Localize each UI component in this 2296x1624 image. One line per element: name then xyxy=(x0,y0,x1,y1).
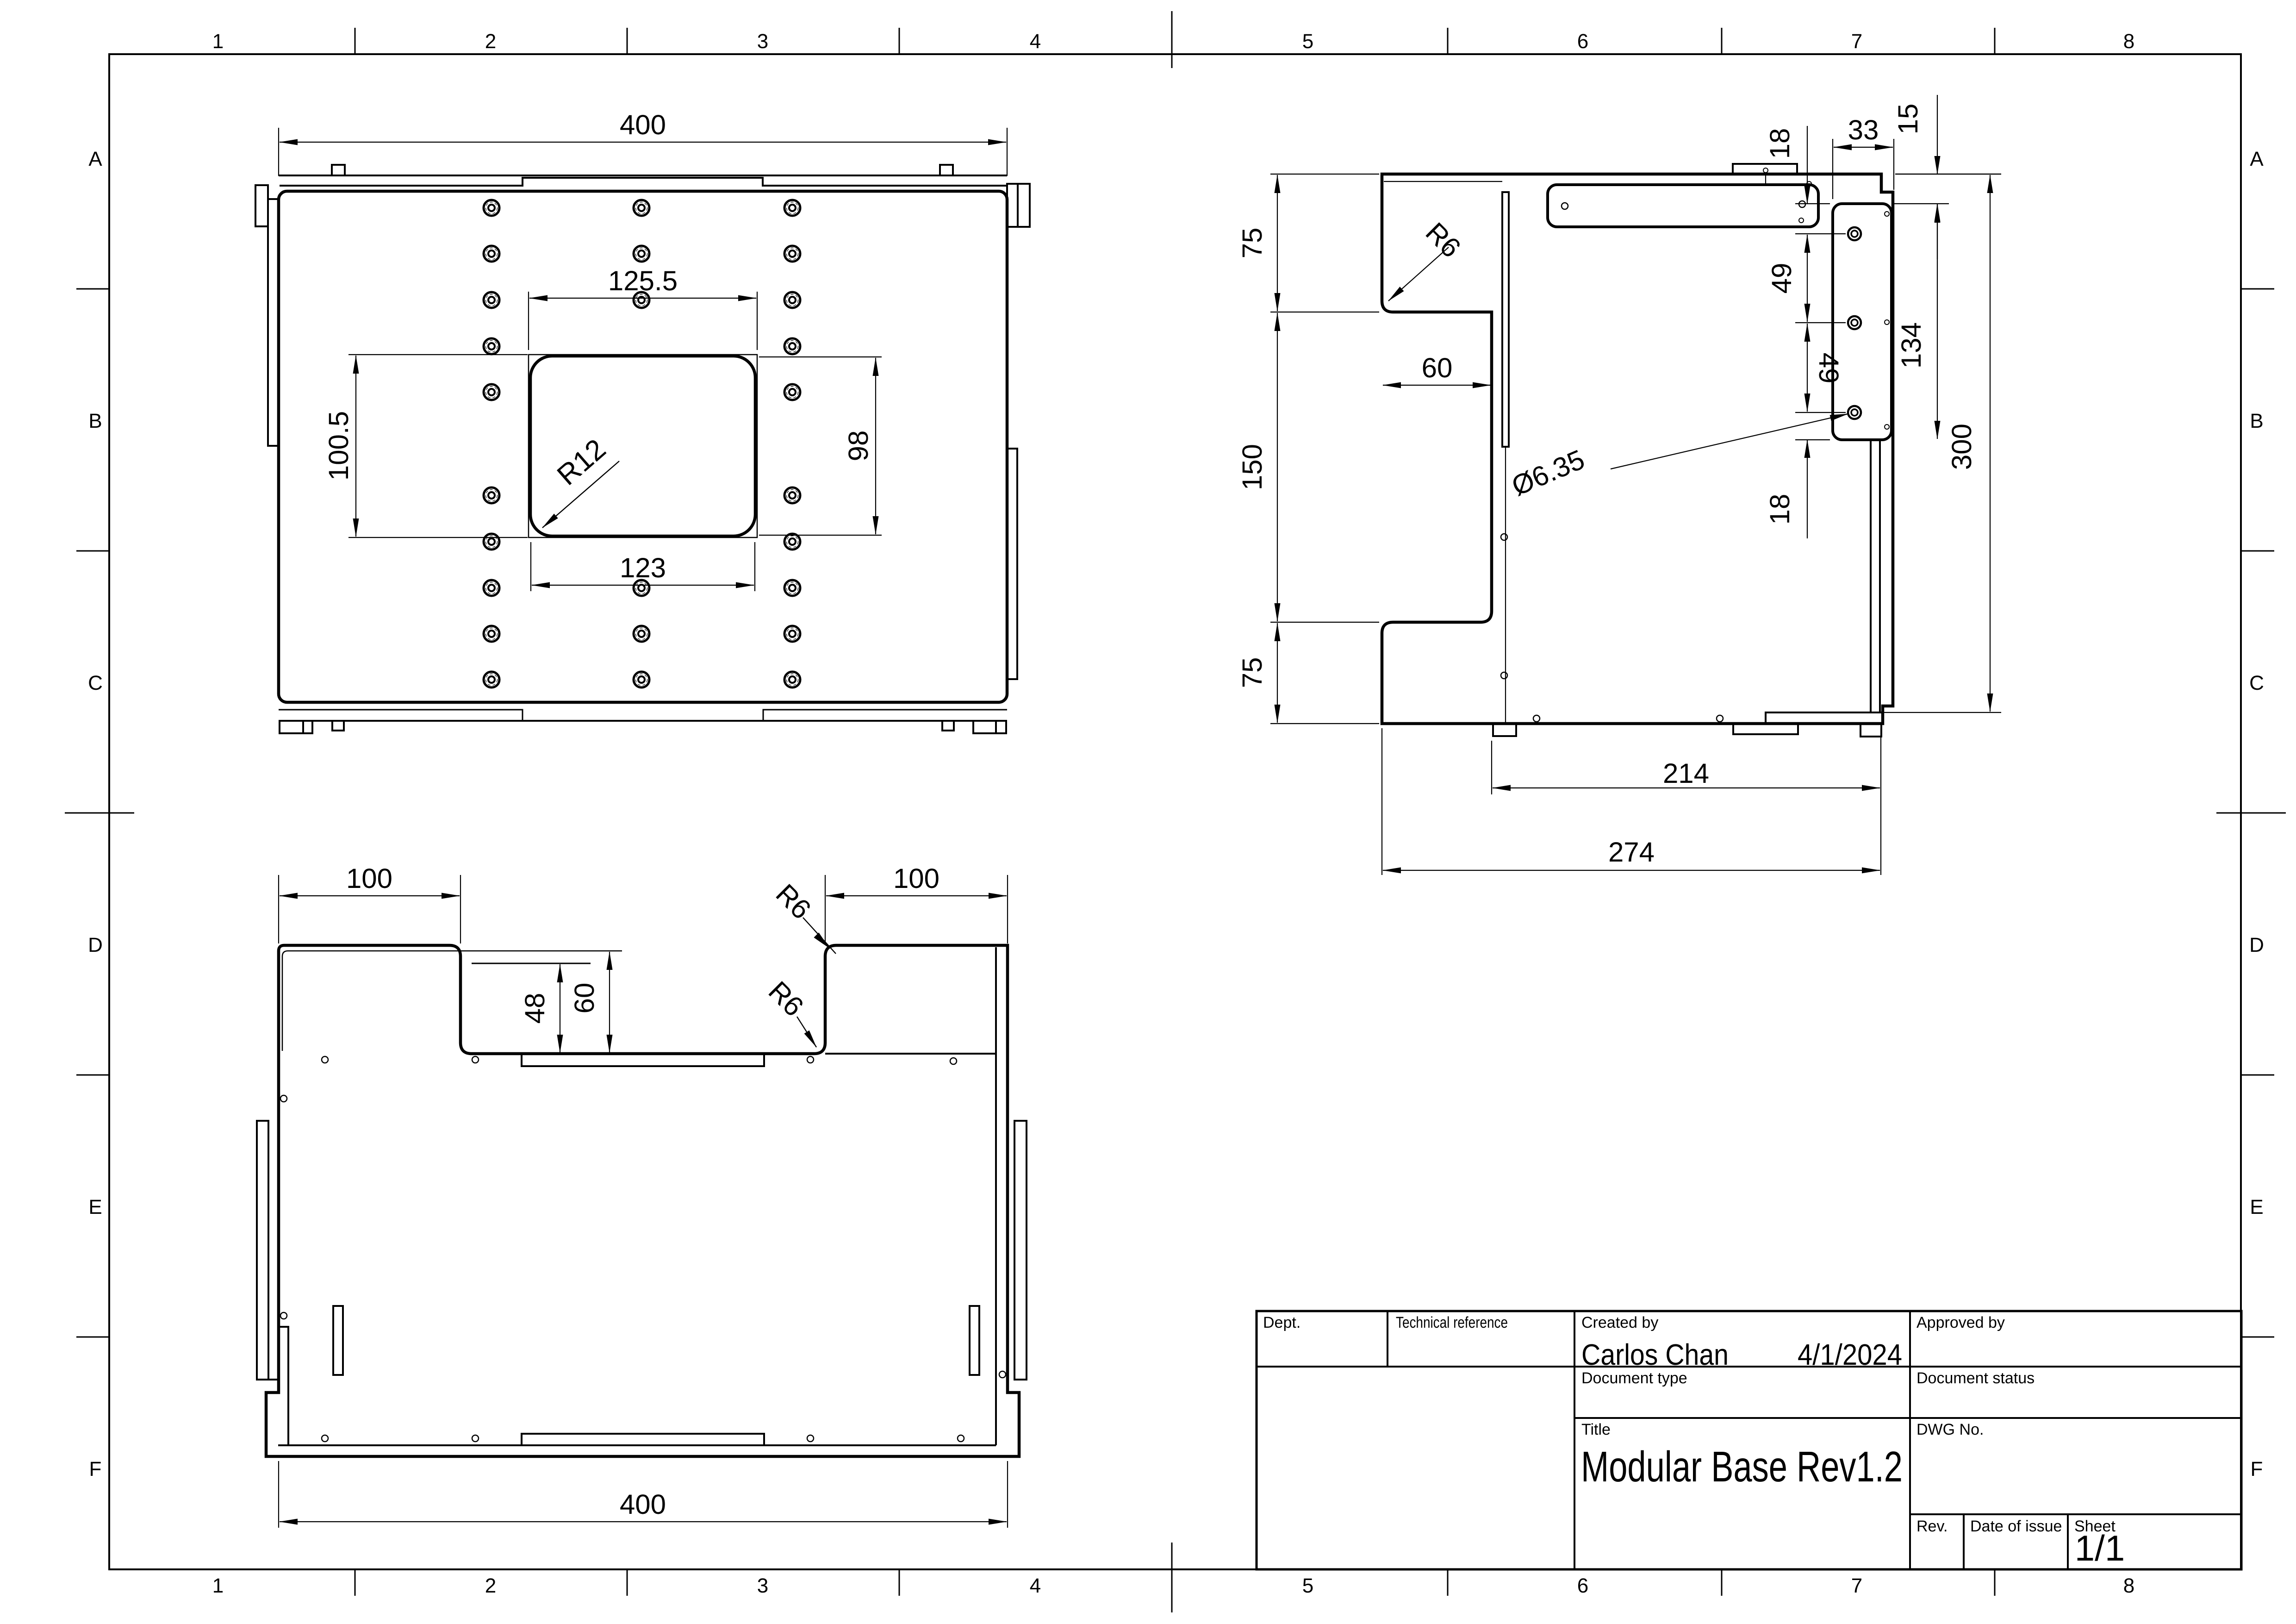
svg-text:49: 49 xyxy=(1813,353,1844,384)
svg-text:100: 100 xyxy=(893,863,940,894)
svg-text:Document status: Document status xyxy=(1916,1369,2035,1387)
svg-text:4/1/2024: 4/1/2024 xyxy=(1798,1338,1902,1371)
svg-text:49: 49 xyxy=(1766,263,1797,294)
svg-text:100.5: 100.5 xyxy=(323,411,354,481)
svg-text:75: 75 xyxy=(1237,657,1268,688)
svg-text:1: 1 xyxy=(212,30,224,53)
svg-text:15: 15 xyxy=(1892,104,1923,135)
svg-text:98: 98 xyxy=(843,431,874,462)
svg-text:Date of issue: Date of issue xyxy=(1970,1518,2062,1535)
svg-text:18: 18 xyxy=(1764,128,1795,159)
svg-text:F: F xyxy=(89,1458,102,1480)
svg-text:60: 60 xyxy=(1422,352,1453,383)
svg-text:Title: Title xyxy=(1581,1421,1611,1438)
svg-text:134: 134 xyxy=(1896,322,1927,369)
svg-text:6: 6 xyxy=(1577,30,1588,53)
svg-text:33: 33 xyxy=(1848,114,1879,145)
svg-text:4: 4 xyxy=(1030,30,1041,53)
svg-text:48: 48 xyxy=(519,993,550,1024)
svg-text:100: 100 xyxy=(346,863,392,894)
svg-text:D: D xyxy=(2249,934,2264,956)
svg-text:Technical reference: Technical reference xyxy=(1396,1314,1508,1331)
svg-text:2: 2 xyxy=(485,30,496,53)
svg-text:300: 300 xyxy=(1946,424,1977,470)
svg-text:C: C xyxy=(2249,672,2264,694)
svg-text:DWG No.: DWG No. xyxy=(1916,1421,1984,1438)
svg-text:A: A xyxy=(88,148,102,170)
svg-text:2: 2 xyxy=(485,1574,496,1597)
svg-text:5: 5 xyxy=(1302,30,1313,53)
svg-text:Document type: Document type xyxy=(1581,1369,1687,1387)
svg-text:D: D xyxy=(88,934,103,956)
svg-text:F: F xyxy=(2251,1458,2263,1480)
svg-text:1/1: 1/1 xyxy=(2075,1528,2125,1568)
svg-text:Modular Base Rev1.2: Modular Base Rev1.2 xyxy=(1581,1443,1903,1491)
svg-text:4: 4 xyxy=(1030,1574,1041,1597)
svg-text:3: 3 xyxy=(757,30,768,53)
svg-text:8: 8 xyxy=(2123,30,2134,53)
svg-text:Created by: Created by xyxy=(1581,1314,1658,1331)
svg-text:1: 1 xyxy=(212,1574,224,1597)
svg-text:274: 274 xyxy=(1608,837,1655,868)
svg-text:3: 3 xyxy=(757,1574,768,1597)
svg-text:150: 150 xyxy=(1237,444,1268,490)
svg-text:18: 18 xyxy=(1764,494,1795,525)
svg-text:400: 400 xyxy=(620,109,666,140)
svg-text:5: 5 xyxy=(1302,1574,1313,1597)
svg-text:6: 6 xyxy=(1577,1574,1588,1597)
svg-text:Approved by: Approved by xyxy=(1916,1314,2005,1331)
svg-text:123: 123 xyxy=(620,552,666,583)
svg-text:A: A xyxy=(2250,148,2264,170)
svg-text:B: B xyxy=(88,410,102,432)
svg-text:400: 400 xyxy=(620,1489,666,1520)
svg-text:7: 7 xyxy=(1851,1574,1862,1597)
svg-text:8: 8 xyxy=(2123,1574,2134,1597)
svg-text:C: C xyxy=(88,672,103,694)
svg-text:Dept.: Dept. xyxy=(1263,1314,1300,1331)
svg-text:75: 75 xyxy=(1237,228,1268,259)
svg-text:Carlos Chan: Carlos Chan xyxy=(1581,1338,1729,1371)
svg-text:E: E xyxy=(2250,1196,2263,1218)
svg-text:Rev.: Rev. xyxy=(1916,1518,1948,1535)
svg-text:7: 7 xyxy=(1851,30,1862,53)
svg-text:125.5: 125.5 xyxy=(608,265,678,296)
svg-text:60: 60 xyxy=(569,983,600,1014)
svg-text:B: B xyxy=(2250,410,2263,432)
svg-text:214: 214 xyxy=(1663,758,1709,789)
svg-text:E: E xyxy=(88,1196,102,1218)
